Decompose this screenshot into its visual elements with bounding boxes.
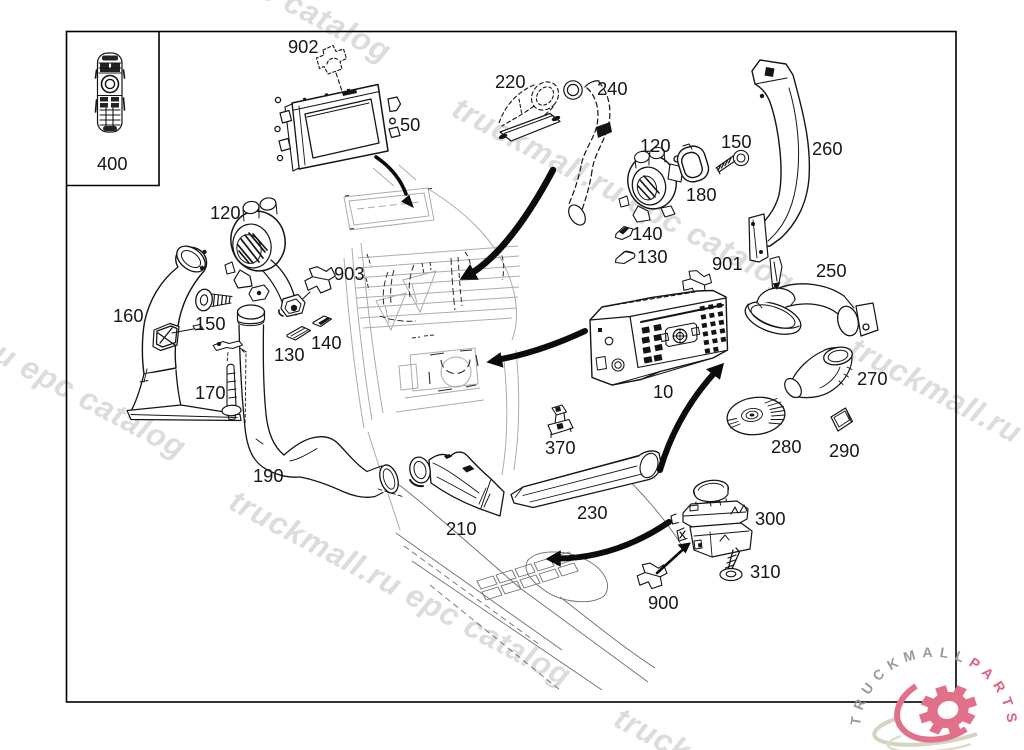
svg-text:150: 150 xyxy=(721,131,752,152)
svg-text:901: 901 xyxy=(712,253,743,274)
svg-text:130: 130 xyxy=(637,246,668,267)
svg-text:180: 180 xyxy=(686,184,717,205)
svg-text:120: 120 xyxy=(210,202,241,223)
svg-text:170: 170 xyxy=(195,382,226,403)
svg-text:290: 290 xyxy=(829,440,860,461)
svg-text:220: 220 xyxy=(495,71,526,92)
svg-text:240: 240 xyxy=(597,78,628,99)
svg-text:190: 190 xyxy=(253,465,284,486)
svg-text:270: 270 xyxy=(857,368,888,389)
svg-text:280: 280 xyxy=(771,436,802,457)
svg-text:160: 160 xyxy=(113,305,144,326)
svg-text:903: 903 xyxy=(334,263,365,284)
svg-text:120: 120 xyxy=(640,135,671,156)
svg-text:260: 260 xyxy=(812,138,843,159)
svg-text:400: 400 xyxy=(97,153,128,174)
svg-text:300: 300 xyxy=(755,508,786,529)
svg-text:140: 140 xyxy=(311,332,342,353)
svg-text:130: 130 xyxy=(274,344,305,365)
svg-text:230: 230 xyxy=(577,502,608,523)
svg-text:150: 150 xyxy=(195,313,226,334)
svg-text:210: 210 xyxy=(446,518,477,539)
svg-text:250: 250 xyxy=(816,260,847,281)
svg-text:140: 140 xyxy=(632,223,663,244)
svg-text:902: 902 xyxy=(288,36,319,57)
svg-text:10: 10 xyxy=(653,381,673,402)
svg-text:370: 370 xyxy=(545,437,576,458)
svg-text:900: 900 xyxy=(648,592,679,613)
svg-text:50: 50 xyxy=(400,114,420,135)
svg-text:310: 310 xyxy=(750,561,781,582)
